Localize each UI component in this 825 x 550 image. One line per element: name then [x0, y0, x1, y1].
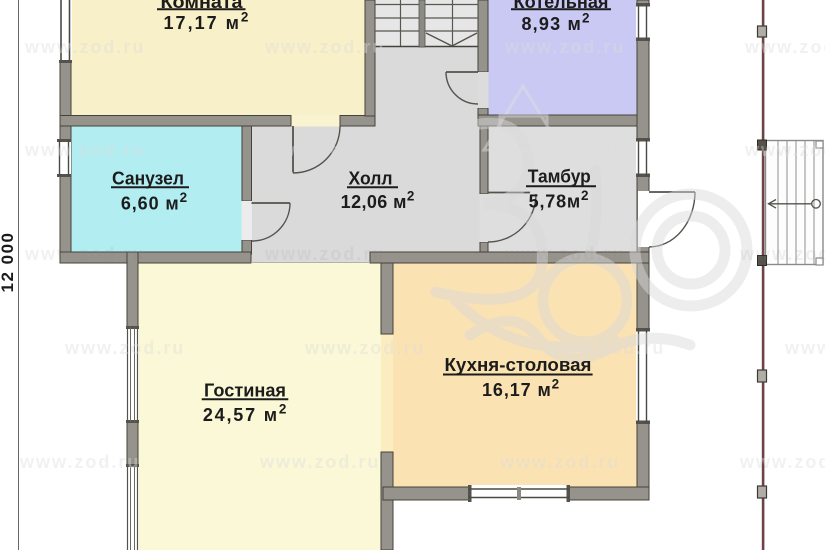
svg-text:Холл: Холл [349, 168, 393, 188]
svg-text:www.zod.ru: www.zod.ru [739, 452, 825, 472]
svg-text:Тамбур: Тамбур [528, 167, 591, 187]
svg-text:www.zod.ru: www.zod.ru [24, 244, 145, 264]
svg-text:www.zod.ru: www.zod.ru [264, 244, 385, 264]
svg-text:5,78м2: 5,78м2 [529, 188, 589, 212]
svg-text:www.zod.ru: www.zod.ru [64, 338, 185, 358]
svg-text:www.zod.ru: www.zod.ru [504, 37, 625, 57]
svg-text:www.zod.ru: www.zod.ru [19, 452, 140, 472]
svg-text:www.zod.ru: www.zod.ru [744, 140, 825, 160]
svg-text:Санузел: Санузел [112, 168, 184, 188]
svg-text:www.zod.ru: www.zod.ru [744, 37, 825, 57]
svg-text:www.zod.ru: www.zod.ru [499, 452, 620, 472]
svg-text:www.zod.ru: www.zod.ru [24, 140, 145, 160]
svg-text:12,06 м2: 12,06 м2 [341, 189, 415, 213]
svg-text:www.zod.ru: www.zod.ru [304, 338, 425, 358]
svg-text:www.zod.ru: www.zod.ru [504, 140, 625, 160]
svg-text:6,60 м2: 6,60 м2 [121, 190, 187, 214]
svg-text:12 000: 12 000 [0, 232, 17, 293]
svg-text:17,17 м2: 17,17 м2 [164, 10, 249, 34]
svg-text:www.zod.ru: www.zod.ru [259, 452, 380, 472]
svg-text:24,57 м2: 24,57 м2 [203, 402, 286, 426]
svg-text:8,93 м2: 8,93 м2 [521, 11, 589, 35]
svg-text:www.zod.ru: www.zod.ru [784, 338, 825, 358]
svg-text:www.zod.ru: www.zod.ru [739, 244, 825, 264]
svg-text:16,17 м2: 16,17 м2 [482, 377, 559, 401]
svg-text:www.zod.ru: www.zod.ru [24, 37, 145, 57]
svg-text:www.zod.ru: www.zod.ru [504, 244, 625, 264]
svg-text:www.zod.ru: www.zod.ru [264, 140, 385, 160]
svg-text:Кухня-столовая: Кухня-столовая [445, 355, 592, 375]
svg-text:Гостиная: Гостиная [204, 381, 286, 401]
svg-text:www.zod.ru: www.zod.ru [264, 37, 385, 57]
